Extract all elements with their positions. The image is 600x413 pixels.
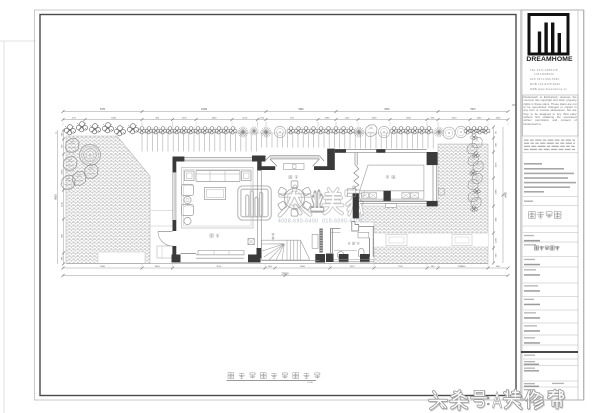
svg-text:2690: 2690 <box>406 118 412 120</box>
svg-text:5970: 5970 <box>470 109 476 111</box>
svg-text:1200: 1200 <box>496 237 498 243</box>
svg-text:1135: 1135 <box>62 201 64 206</box>
svg-text:4460: 4460 <box>155 266 161 268</box>
svg-text:4008-690-6400 010-6090-6400: 4008-690-6400 010-6090-6400 <box>278 219 363 225</box>
svg-text:6480: 6480 <box>505 192 508 198</box>
svg-text:1800: 1800 <box>496 118 502 120</box>
svg-text:2700: 2700 <box>458 266 464 268</box>
svg-text:2390: 2390 <box>325 118 331 120</box>
svg-text:1010: 1010 <box>242 118 248 120</box>
svg-text:1080: 1080 <box>111 118 117 120</box>
svg-text:25900: 25900 <box>281 272 289 276</box>
svg-text:2280: 2280 <box>496 189 498 195</box>
svg-text:10460: 10460 <box>201 109 208 111</box>
svg-text:2110: 2110 <box>259 118 264 120</box>
svg-text:1440: 1440 <box>477 118 483 120</box>
svg-text:4360: 4360 <box>300 266 306 268</box>
svg-text:2690: 2690 <box>62 169 64 175</box>
svg-text:2110: 2110 <box>398 266 403 268</box>
svg-text:1010: 1010 <box>182 118 188 120</box>
svg-text:680: 680 <box>496 217 498 221</box>
svg-text:90: 90 <box>496 131 498 134</box>
svg-text:600: 600 <box>496 253 498 257</box>
svg-text:1575: 1575 <box>496 162 498 168</box>
svg-text:2590: 2590 <box>512 105 518 107</box>
svg-text:1010: 1010 <box>350 266 356 268</box>
svg-text:1010: 1010 <box>216 266 222 268</box>
svg-text:4460: 4460 <box>212 118 218 120</box>
svg-text:2390: 2390 <box>100 266 106 268</box>
svg-text:1140: 1140 <box>345 118 350 120</box>
svg-text:8680: 8680 <box>55 194 58 200</box>
svg-text:5960: 5960 <box>298 109 304 111</box>
svg-text:1:100: 1:100 <box>307 382 313 384</box>
svg-text:390: 390 <box>496 142 498 146</box>
svg-text:2280: 2280 <box>372 118 378 120</box>
svg-text:6780: 6780 <box>100 109 106 111</box>
svg-text:8630: 8630 <box>384 109 390 111</box>
svg-text:2310: 2310 <box>452 118 458 120</box>
